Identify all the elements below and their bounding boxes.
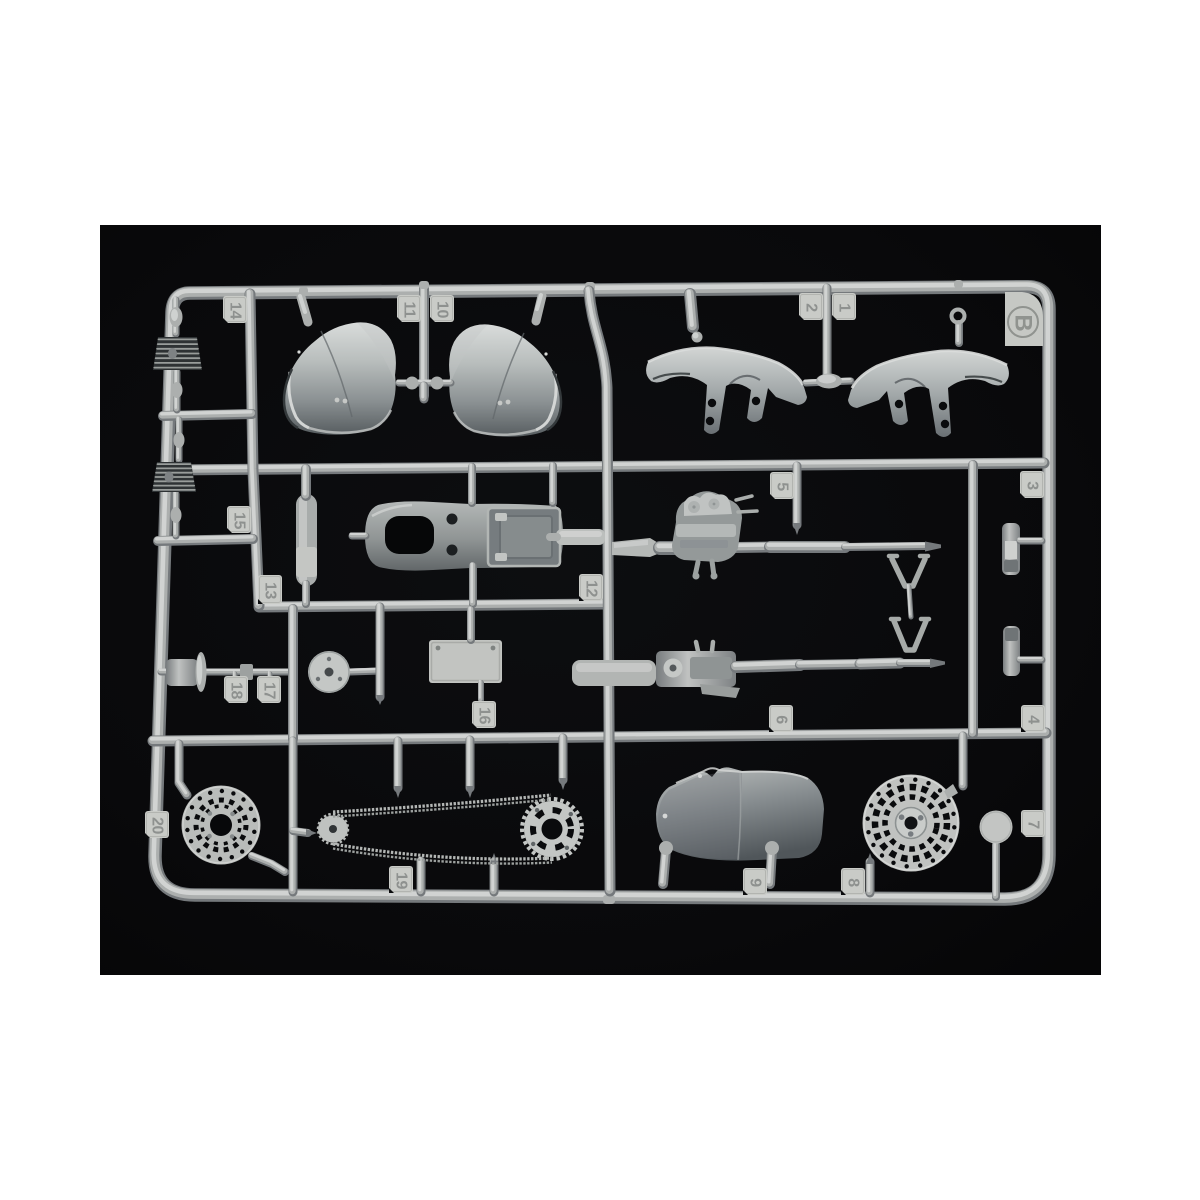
- svg-text:17: 17: [261, 682, 278, 699]
- svg-text:8: 8: [845, 878, 862, 887]
- svg-text:20: 20: [149, 817, 166, 834]
- svg-text:19: 19: [393, 872, 410, 889]
- svg-text:6: 6: [773, 715, 790, 724]
- svg-text:3: 3: [1024, 481, 1041, 490]
- svg-text:5: 5: [774, 482, 791, 491]
- svg-text:11: 11: [401, 302, 418, 319]
- svg-text:14: 14: [227, 302, 244, 319]
- svg-text:13: 13: [262, 582, 279, 599]
- svg-text:15: 15: [231, 512, 248, 529]
- svg-text:B: B: [1010, 314, 1037, 331]
- svg-text:12: 12: [583, 580, 600, 597]
- svg-text:7: 7: [1025, 820, 1042, 829]
- svg-text:9: 9: [747, 878, 764, 887]
- svg-text:1: 1: [836, 303, 853, 312]
- svg-text:18: 18: [228, 682, 245, 699]
- svg-text:16: 16: [476, 707, 493, 724]
- svg-text:4: 4: [1025, 715, 1042, 724]
- svg-text:10: 10: [434, 301, 451, 318]
- svg-text:2: 2: [803, 303, 820, 312]
